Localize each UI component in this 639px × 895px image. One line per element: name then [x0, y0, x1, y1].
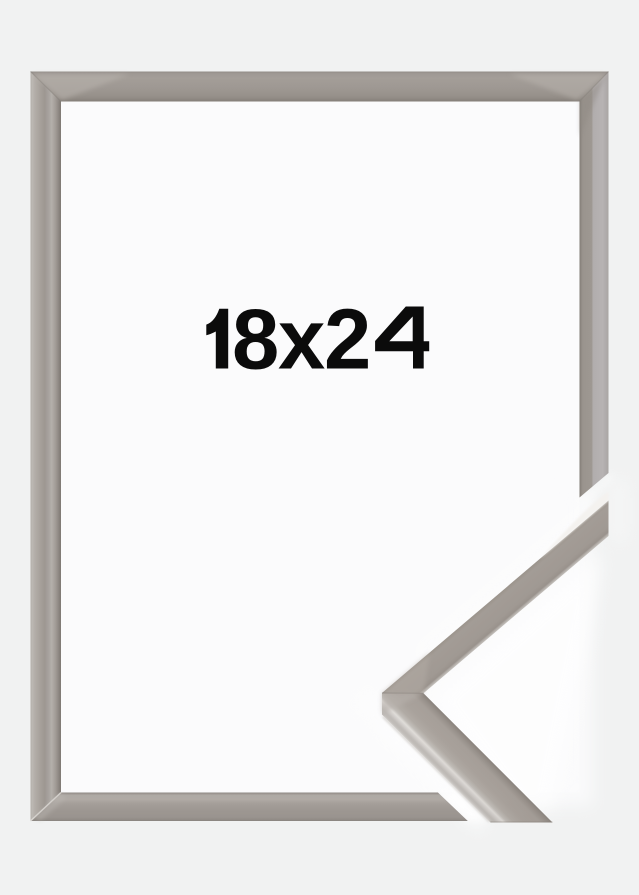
svg-text:8x2: 8x2 — [232, 293, 371, 388]
